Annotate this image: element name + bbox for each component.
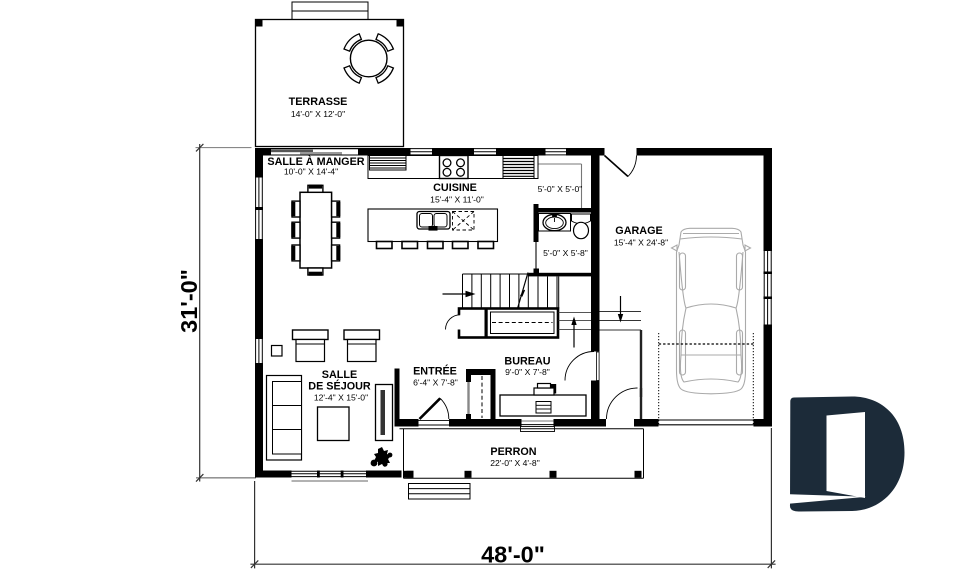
svg-text:22'-0" X 4'-8": 22'-0" X 4'-8" [490,458,540,468]
svg-text:10'-0" X 14'-4": 10'-0" X 14'-4" [284,167,338,177]
svg-text:12'-4" X 15'-0": 12'-4" X 15'-0" [314,393,368,403]
svg-text:CUISINE: CUISINE [433,182,477,194]
svg-text:PERRON: PERRON [490,446,536,458]
svg-text:DE SÉJOUR: DE SÉJOUR [308,380,371,393]
svg-text:31'-0": 31'-0" [176,269,202,333]
svg-text:6'-4" X 7'-8": 6'-4" X 7'-8" [413,378,458,388]
svg-text:9'-0" X 7'-8": 9'-0" X 7'-8" [505,367,550,377]
svg-text:GARAGE: GARAGE [615,225,662,237]
svg-text:SALLE: SALLE [322,369,357,381]
svg-text:TERRASSE: TERRASSE [289,96,348,108]
svg-text:15'-4" X 24'-8": 15'-4" X 24'-8" [614,238,668,248]
svg-text:15'-4" X 11'-0": 15'-4" X 11'-0" [430,195,484,205]
svg-text:5'-0" X 5'-8": 5'-0" X 5'-8" [543,248,588,258]
svg-text:BUREAU: BUREAU [504,356,550,368]
svg-text:ENTRÉE: ENTRÉE [413,365,457,378]
svg-text:14'-0" X 12'-0": 14'-0" X 12'-0" [291,109,345,119]
svg-text:5'-0" X 5'-0": 5'-0" X 5'-0" [538,184,583,194]
svg-text:48'-0": 48'-0" [481,541,545,567]
